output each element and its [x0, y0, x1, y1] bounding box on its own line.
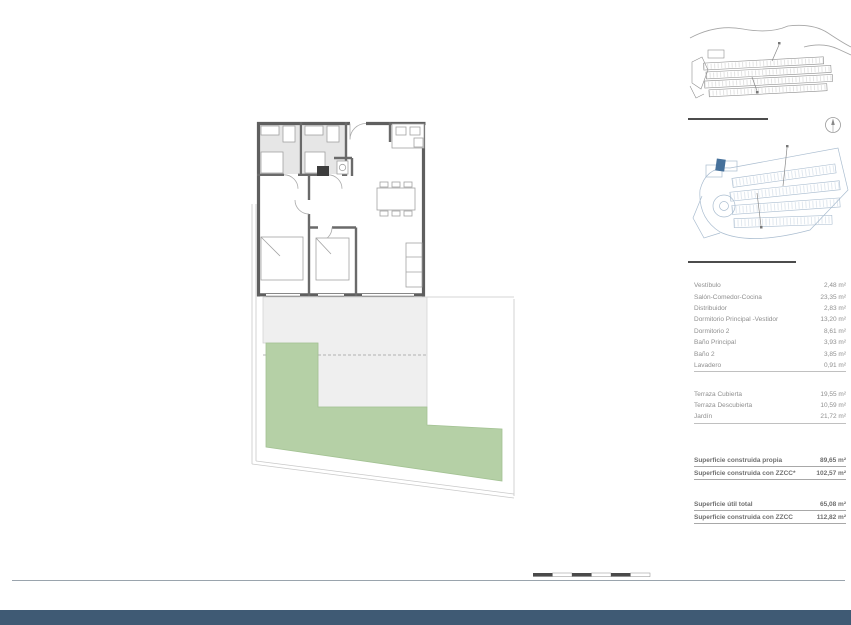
decreto-surface-row: Superficie útil total 65,08 m²	[694, 498, 846, 511]
surface-row: Terraza Descubierta 10,59 m²	[694, 400, 846, 411]
siteplan-outline	[693, 148, 848, 239]
surface-row-label: Terraza Cubierta	[694, 391, 742, 398]
exterior-rows: Terraza Cubierta 19,55 m² Terraza Descub…	[694, 389, 846, 423]
decreto-rows: Superficie útil total 65,08 m² Superfici…	[694, 498, 846, 524]
title-underline	[12, 580, 845, 581]
heading-underline	[688, 118, 768, 120]
surface-row-value: 8,61 m²	[824, 328, 846, 335]
surface-row-label: Baño 2	[694, 351, 715, 358]
surface-row-label: Superficie útil total	[694, 501, 753, 508]
footer-accent-bar	[0, 610, 851, 625]
superficies-heading	[688, 258, 848, 263]
surface-row-value: 2,48 m²	[824, 282, 846, 289]
scale-bar-segments	[533, 573, 650, 577]
surface-row-value: 112,82 m²	[817, 514, 846, 521]
sketch-ridge	[690, 25, 851, 55]
interior-rows: Vestíbulo 2,48 m² Salón-Comedor-Cocina 2…	[694, 280, 846, 371]
built-surface-row: Superficie construida propia 89,65 m²	[694, 454, 846, 467]
site-sketch-map	[688, 16, 851, 108]
surface-row: Baño 2 3,85 m²	[694, 348, 846, 359]
surface-row: Jardín 21,72 m²	[694, 411, 846, 422]
surface-row-label: Distribuidor	[694, 305, 727, 312]
surface-row-value: 19,55 m²	[820, 391, 846, 398]
surface-row-value: 102,57 m²	[816, 470, 846, 477]
surface-row-value: 23,35 m²	[820, 294, 846, 301]
surface-row: Terraza Cubierta 19,55 m²	[694, 389, 846, 400]
highlighted-block-b16	[715, 159, 726, 172]
siteplan-housing-rows	[730, 164, 840, 228]
map1-fase-markers	[752, 42, 781, 94]
surface-row-label: Baño Principal	[694, 339, 736, 346]
surface-row-label: Dormitorio 2	[694, 328, 729, 335]
surface-row-value: 89,65 m²	[820, 457, 846, 464]
surface-row-value: 3,85 m²	[824, 351, 846, 358]
plan-sheet-page: Vestíbulo 2,48 m² Salón-Comedor-Cocina 2…	[0, 0, 851, 625]
surface-row: Dormitorio Principal -Vestidor 13,20 m²	[694, 314, 846, 325]
heading-underline	[688, 261, 796, 263]
surface-row-label: Vestíbulo	[694, 282, 721, 289]
surface-row-value: 21,72 m²	[820, 413, 846, 420]
surface-row-label: Dormitorio Principal -Vestidor	[694, 316, 778, 323]
surface-row: Vestíbulo 2,48 m²	[694, 280, 846, 291]
surface-row-value: 65,08 m²	[820, 501, 846, 508]
surface-row-label: Superficie construida con ZZCC*	[694, 470, 796, 477]
decreto-surface-row: Superficie construida con ZZCC 112,82 m²	[694, 511, 846, 524]
sketch-housing-rows	[690, 50, 833, 98]
surface-row-label: Terraza Descubierta	[694, 402, 752, 409]
shaft-block	[317, 166, 329, 176]
surface-row-value: 0,91 m²	[824, 362, 846, 369]
north-compass-icon	[818, 108, 848, 138]
surface-row-value: 2,83 m²	[824, 305, 846, 312]
site-plan-map	[688, 138, 851, 256]
built-surface-row: Superficie construida con ZZCC* 102,57 m…	[694, 467, 846, 480]
exterior-total-row	[694, 423, 846, 434]
surface-row-label: Lavadero	[694, 362, 721, 369]
decreto-heading-row	[694, 485, 846, 498]
surface-row-label: Jardín	[694, 413, 712, 420]
surface-row: Baño Principal 3,93 m²	[694, 337, 846, 348]
construida-rows: Superficie construida propia 89,65 m² Su…	[694, 454, 846, 480]
surface-row-label: Superficie construida con ZZCC	[694, 514, 793, 521]
surface-row: Dormitorio 2 8,61 m²	[694, 326, 846, 337]
scale-bar	[530, 561, 662, 583]
emplazamiento-heading	[688, 115, 818, 120]
surfaces-table: Vestíbulo 2,48 m² Salón-Comedor-Cocina 2…	[694, 280, 846, 527]
surface-row: Lavadero 0,91 m²	[694, 360, 846, 371]
surface-row: Distribuidor 2,83 m²	[694, 303, 846, 314]
surface-row: Salón-Comedor-Cocina 23,35 m²	[694, 291, 846, 302]
surface-row-value: 13,20 m²	[820, 316, 846, 323]
interior-total-row	[694, 371, 846, 382]
surface-row-label: Salón-Comedor-Cocina	[694, 294, 762, 301]
surface-row-label: Superficie construida propia	[694, 457, 782, 464]
floor-plan	[240, 110, 540, 505]
surface-row-value: 3,93 m²	[824, 339, 846, 346]
facade-windows	[266, 294, 414, 297]
surface-row-value: 10,59 m²	[820, 402, 846, 409]
